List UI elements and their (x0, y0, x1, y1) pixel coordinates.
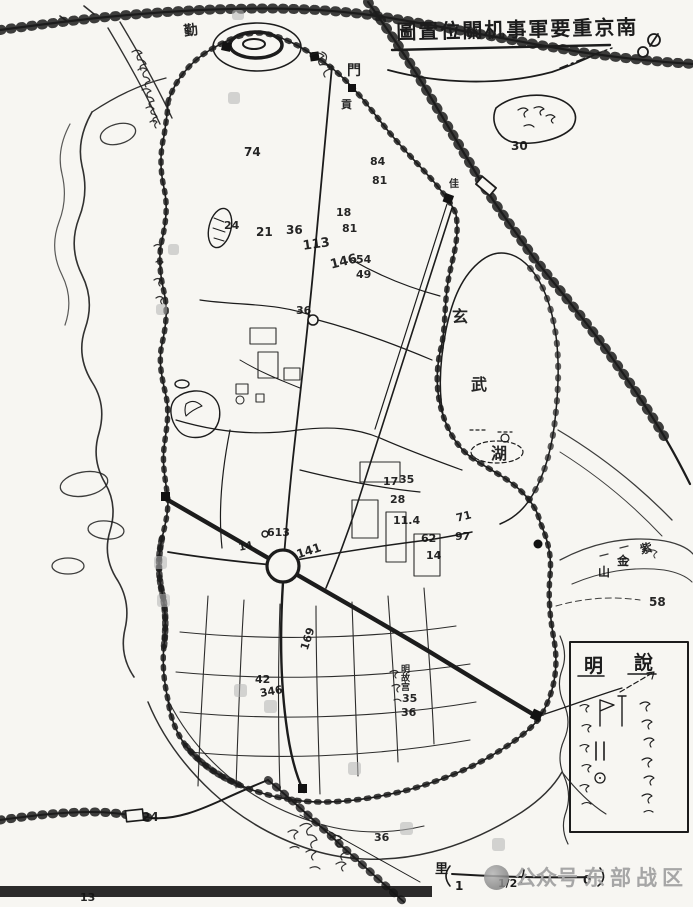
city-blocks (176, 328, 476, 794)
hills-outside-west (52, 120, 138, 574)
map-title: 圖置位關机事軍要重京南 (396, 11, 613, 45)
legend-handwriting-scribbles (640, 702, 654, 812)
xuanwu-lake (440, 253, 558, 524)
scan-bottom-bar (0, 886, 432, 897)
legend-header-char: 明 (584, 651, 603, 678)
hill-small (204, 206, 235, 250)
map-linework (0, 0, 693, 907)
purple-mountain-contours (556, 430, 693, 606)
watermark-name: 东部战区 (584, 862, 688, 892)
legend-header-char: 說 (634, 648, 653, 675)
watermark: 公众号 东部战区 (484, 862, 688, 892)
illegible-handwriting-scribbles (132, 50, 657, 871)
scale-unit-label: 里 (435, 858, 448, 877)
scanned-map-page: 圖置位關机事軍要重京南 說 明 里 1 1/2 0 公众号 东部战区 74242… (0, 0, 693, 907)
station-marker (126, 809, 144, 822)
islet-northeast (494, 95, 575, 143)
scale-tick-label: 1 (455, 879, 463, 893)
railway-northeast (368, 2, 690, 484)
city-wall (159, 33, 556, 802)
lake-islands (470, 430, 523, 463)
station-marker (476, 176, 496, 195)
watermark-prefix: 公众号 (515, 862, 578, 892)
yangtze-river (55, 6, 172, 677)
central-roundabout (267, 550, 299, 582)
qinhuai-river (148, 636, 606, 859)
watermark-logo-icon (484, 865, 509, 890)
moat-southeast (559, 636, 568, 844)
gates (161, 41, 543, 793)
